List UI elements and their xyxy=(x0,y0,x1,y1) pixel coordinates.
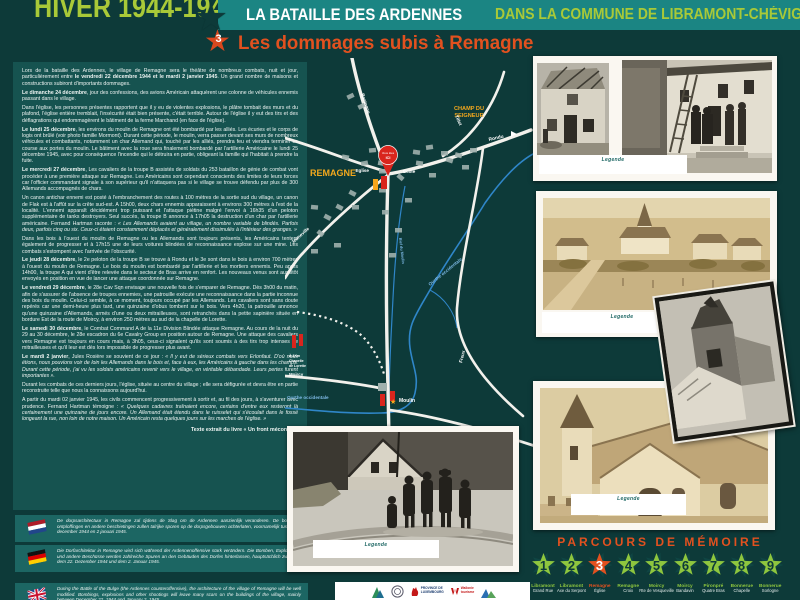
wallonie-tourisme-logo: Wallonietourisme xyxy=(451,587,474,596)
dashed-track xyxy=(297,312,384,374)
ardenne-landscape-logo xyxy=(481,585,496,598)
article-paragraph: Durant les combats de ces derniers jours… xyxy=(22,382,298,395)
mill-star-icon: ★ xyxy=(390,398,396,406)
photo-panel-top: Legende xyxy=(533,56,777,181)
translation-text-de: Die Dorfarchitektur in Remagne wird sich… xyxy=(57,548,301,565)
photo-caption: Legende xyxy=(313,540,439,558)
netherlands-flag-icon xyxy=(27,519,46,535)
river-label: Ourthe occidentale xyxy=(427,256,463,286)
parcours-title: PARCOURS DE MÉMOIRE xyxy=(543,535,777,549)
article-paragraph: Dans l'église, les personnes présentes r… xyxy=(22,105,298,124)
map-labels: REMAGNE CHAMP DU SEIGNEUR Eglise Ecole M… xyxy=(289,93,517,437)
germany-flag-icon xyxy=(27,549,46,565)
town-label: REMAGNE xyxy=(310,168,356,178)
commune-title: DANS LA COMMUNE DE LIBRAMONT-CHÉVIGNY xyxy=(495,6,800,24)
road-label-moircy: Moircy xyxy=(289,372,304,377)
article-paragraph: Le mercredi 27 décembre, Les cavaliers d… xyxy=(22,167,298,192)
memorial-panel: HIVER 1944-1945 LA BATAILLE DES ARDENNES… xyxy=(0,0,800,600)
river-label-2: Ourthe occidentale xyxy=(287,395,329,400)
divider-star-icon: ★ xyxy=(194,0,228,40)
translation-box-nl: De dorpsarchitectuur in Remagne zal tijd… xyxy=(15,515,308,542)
article-paragraph: Le dimanche 24 décembre, jour des confes… xyxy=(22,90,298,103)
school-label: Ecole xyxy=(403,169,416,174)
uk-flag-icon xyxy=(27,587,46,600)
pin-text-2: ICI xyxy=(386,156,391,160)
road-label-freux: Freux xyxy=(458,349,466,363)
chapel-note-1: À 1Km xyxy=(289,353,300,358)
seal-logo xyxy=(391,585,404,598)
stop-place: Sorlogne xyxy=(741,589,799,594)
commune-logo xyxy=(369,585,384,598)
field-label-1: CHAMP DU xyxy=(454,106,484,112)
stop-star-icon: 9 xyxy=(757,551,784,578)
photo-caption: Legende xyxy=(571,494,686,515)
article-paragraph: Lors de la bataille des Ardennes, le vil… xyxy=(22,68,298,87)
article-panel: Lors de la bataille des Ardennes, le vil… xyxy=(13,62,307,510)
translation-text-nl: De dorpsarchitectuur in Remagne zal tijd… xyxy=(57,518,301,535)
article-paragraph: Le jeudi 28 décembre, le 2e peloton de l… xyxy=(22,257,298,282)
article-paragraph: A partir du mardi 02 janvier 1945, les c… xyxy=(22,397,298,422)
header-band: LA BATAILLE DES ARDENNES DANS LA COMMUNE… xyxy=(218,0,800,30)
article-credit: Texte extrait du livre « Un front méconn… xyxy=(22,427,298,433)
translation-box-de: Die Dorfarchitektur in Remagne wird sich… xyxy=(15,545,308,572)
photo-damaged-tower xyxy=(654,281,793,441)
article-paragraph: Dans les bois à l'ouest du moulin de Rem… xyxy=(22,236,298,255)
stream-label: Bief du Moulin xyxy=(398,238,405,265)
article-paragraph: Un canon antichar ennemi est posté à l'e… xyxy=(22,195,298,233)
article-paragraph: Le mardi 2 janvier, Jules Rosière se sou… xyxy=(22,354,298,379)
parcours-stop-9: 9BonnerueSorlogne xyxy=(741,551,799,594)
translation-text-en: During the Battle of the Bulge (the Arde… xyxy=(57,586,301,600)
pin-text-1: Vous êtes xyxy=(382,151,395,155)
battle-title: LA BATAILLE DES ARDENNES xyxy=(246,6,462,25)
page-title: Les dommages subis à Remagne xyxy=(238,32,533,55)
article-paragraph: Le lundi 25 décembre, les environs du mo… xyxy=(22,127,298,165)
chapel-note-3: de Lorette xyxy=(289,364,306,368)
translation-box-en: During the Battle of the Bulge (the Arde… xyxy=(15,583,308,600)
road-label-jenneville: Jenneville xyxy=(290,226,310,245)
mill-label: Moulin xyxy=(399,398,415,404)
article-paragraph: Le samedi 30 décembre, le Combat Command… xyxy=(22,326,298,351)
stop-number: 9 xyxy=(767,558,774,573)
article-paragraph: Le vendredi 29 décembre, le 28e Cav Sqn … xyxy=(22,285,298,323)
church-label: Eglise xyxy=(355,168,369,173)
chapel-note-2: Chapelle xyxy=(289,359,304,363)
photo-damaged-tower-image xyxy=(659,287,780,429)
province-luxembourg-logo: PROVINCE DELUXEMBOURG xyxy=(411,586,444,597)
river-labels: Ourthe occidentale Ourthe occidentale Bi… xyxy=(287,238,463,400)
river-lines xyxy=(285,153,535,413)
photo-caption: Legende xyxy=(539,155,687,174)
photo-damaged-house xyxy=(537,63,609,155)
photo-panel-family: Legende xyxy=(287,426,519,572)
footer-logos: PROVINCE DELUXEMBOURG Wallonietourisme xyxy=(335,582,530,600)
